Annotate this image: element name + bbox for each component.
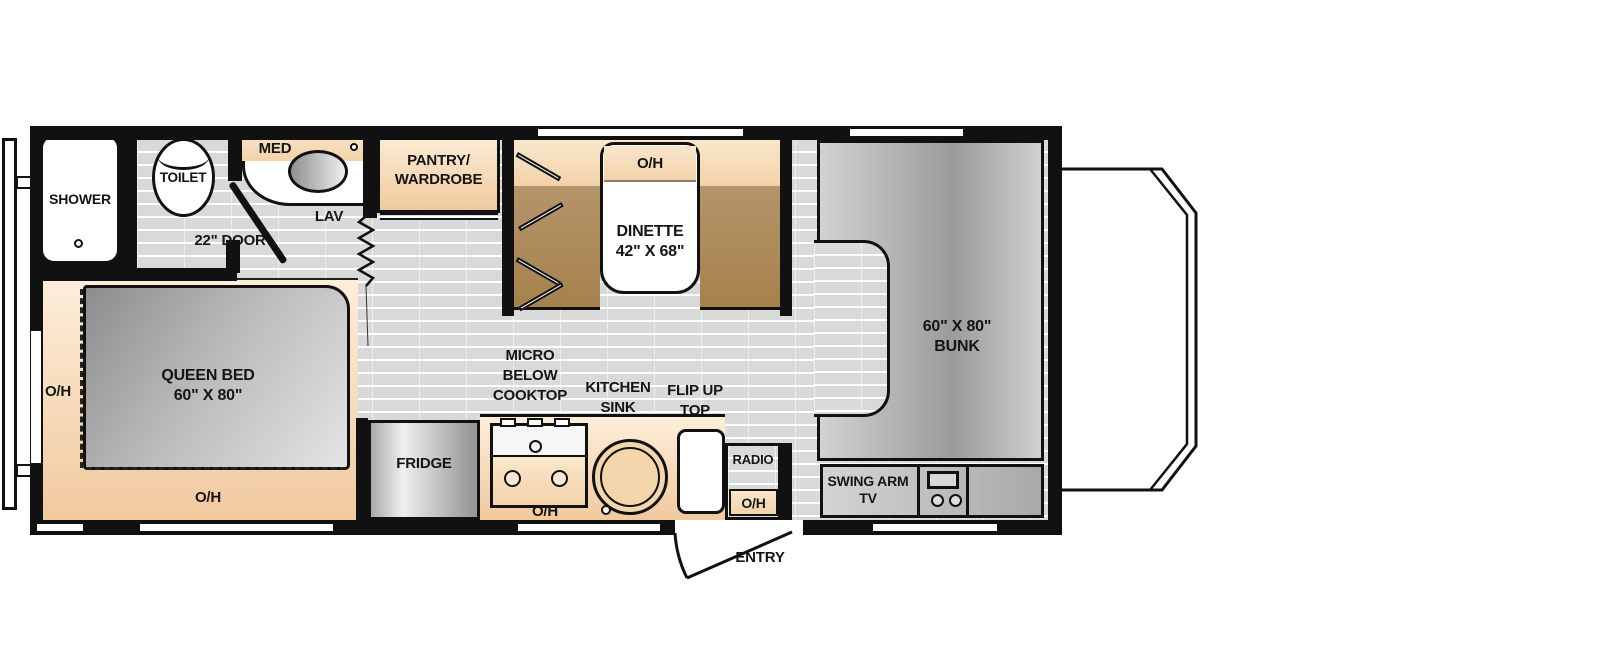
overhead-label-cooktop: O/H <box>525 503 565 522</box>
dinette-label: DINETTE 42" X 68" <box>598 222 702 262</box>
window-bottom-bunk <box>873 524 997 531</box>
flip-up-top-label: FLIP UP TOP <box>658 381 732 421</box>
bath-door-label: 22" DOOR <box>178 232 282 251</box>
flip-up-top <box>677 429 725 514</box>
lav-faucet-icon <box>350 143 358 151</box>
window-rear <box>31 331 41 463</box>
dinette-bench-right <box>700 186 780 310</box>
overhead-label-radio: O/H <box>729 495 778 513</box>
wall-right <box>1048 126 1062 535</box>
bunk-step-notch <box>814 240 890 417</box>
dinette-wall-right <box>780 126 792 316</box>
window-bottom-kitchen <box>518 524 660 531</box>
fridge-wall-stub <box>356 418 368 520</box>
window-bottom-1 <box>37 524 83 531</box>
toilet-label: TOILET <box>148 170 218 187</box>
dinette-wall-left <box>502 126 514 316</box>
bed-dashed-divider-bottom <box>86 467 346 470</box>
rear-bumper <box>2 138 17 510</box>
rear-bracket-top <box>16 176 32 189</box>
toilet-lid-line <box>158 144 209 170</box>
cooktop-burner-right <box>551 470 568 487</box>
micro-cooktop-label: MICRO BELOW COOKTOP <box>482 346 578 406</box>
tv-mount-knob-icon-2 <box>949 494 962 507</box>
swing-arm-tv-label: SWING ARM TV <box>818 473 918 507</box>
lav-label: LAV <box>300 208 358 227</box>
radio-label: RADIO <box>726 452 780 468</box>
bath-bedroom-wall <box>30 268 237 281</box>
pantry-wardrobe-label: PANTRY/ WARDROBE <box>380 152 497 190</box>
cooktop-knob-3 <box>554 418 570 427</box>
window-top-bunk <box>850 129 963 136</box>
kitchen-sink-label: KITCHEN SINK <box>578 378 658 418</box>
window-top-dinette <box>538 129 743 136</box>
floorplan-canvas: QUEEN BED 60" X 80" O/H O/H SHOWER TOILE… <box>0 0 1600 664</box>
sink-drain-icon <box>601 505 611 515</box>
rear-bracket-bottom <box>16 464 32 477</box>
cooktop-burner-small <box>529 440 542 453</box>
overhead-label-dinette: O/H <box>615 155 685 174</box>
overhead-label-bedroom-bottom: O/H <box>183 489 233 508</box>
tv-mount-knob-icon-1 <box>931 494 944 507</box>
cooktop-burner-left <box>504 470 521 487</box>
cab-outline <box>1060 163 1202 495</box>
shower-label: SHOWER <box>42 191 118 209</box>
kitchen-sink-inner-ring <box>600 447 660 507</box>
tv-screen-icon <box>927 471 959 489</box>
cooktop-knob-2 <box>527 418 543 427</box>
cooktop-knob-1 <box>500 418 516 427</box>
bunk-label: 60" X 80" BUNK <box>898 317 1016 357</box>
overhead-label-bedroom-left: O/H <box>38 383 78 402</box>
entry-label: ENTRY <box>732 549 788 568</box>
pantry-slider-track <box>380 213 498 220</box>
window-bottom-bedroom <box>140 524 333 531</box>
privacy-curtain-zigzag <box>355 216 377 348</box>
queen-bed-label: QUEEN BED 60" X 80" <box>138 366 278 406</box>
fridge-label: FRIDGE <box>370 455 478 474</box>
bed-dashed-divider-left <box>80 289 83 468</box>
entry-wall-stub <box>781 443 792 520</box>
lav-sink <box>288 150 348 193</box>
shower-drain-icon <box>74 239 83 248</box>
